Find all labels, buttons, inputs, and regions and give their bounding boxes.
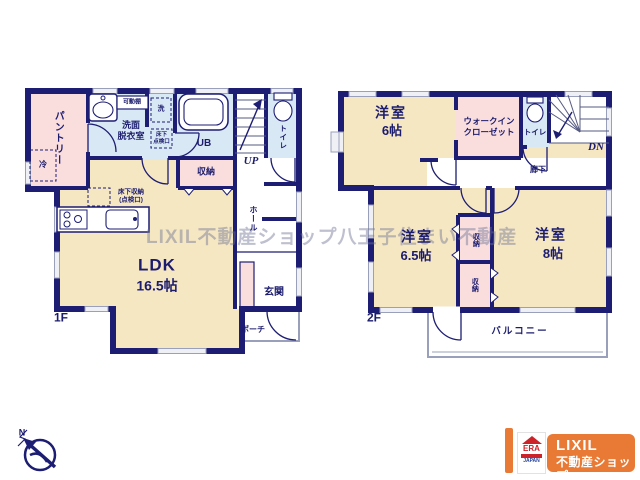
label-ldk: LDK <box>138 254 176 275</box>
era-country: JAPAN <box>523 459 540 464</box>
era-roof-icon <box>522 436 542 444</box>
shoe-cabinet <box>240 262 254 307</box>
label-bedroom1-size: 6帖 <box>382 123 402 139</box>
label-bedroom1: 洋室 <box>375 104 407 122</box>
label-toilet-2f: トイレ <box>524 127 547 136</box>
label-unit-bath: UB <box>197 138 211 151</box>
brand-name: LIXIL <box>556 438 635 455</box>
label-floor1: 1F <box>54 311 68 326</box>
label-fridge: 冷 <box>39 160 47 170</box>
label-toilet-1f: トイレ <box>278 124 287 150</box>
label-stairs-up: UP <box>244 155 259 169</box>
label-floor2: 2F <box>367 311 381 326</box>
label-ldk-size: 16.5帖 <box>136 277 177 295</box>
brand-badge: LIXIL 不動産ショップ <box>547 434 635 472</box>
stove-icon <box>60 210 87 229</box>
compass-wing <box>30 454 47 462</box>
watermark-text: LIXIL不動産ショップ八王子住まい不動産 <box>146 222 517 249</box>
label-stairs-dn: DN <box>588 141 604 155</box>
era-name: ERA <box>523 445 540 453</box>
label-storage-lower: 収納 <box>470 278 479 292</box>
label-movable-shelf: 可動棚 <box>123 99 141 107</box>
label-porch: ポーチ <box>241 325 265 335</box>
room-corridor <box>427 158 609 188</box>
label-storage-1f: 収納 <box>197 166 215 177</box>
label-hall: ホール <box>248 206 258 233</box>
label-underfloor-storage: 床下収納 (点検口) <box>118 189 144 206</box>
label-balcony: バルコニー <box>491 326 548 338</box>
label-bedroom3-size: 8帖 <box>543 246 563 262</box>
compass-north-label: N <box>19 427 26 438</box>
era-logo: ERA JAPAN <box>517 432 546 474</box>
floorplan-page: LIXIL不動産ショップ八王子住まい不動産 パントリー 冷 洗面 脱衣室 可動棚… <box>0 0 640 480</box>
label-storage-upper: 収納 <box>471 233 480 247</box>
label-entrance: 玄関 <box>264 287 284 300</box>
label-bedroom3: 洋室 <box>535 226 567 244</box>
label-bedroom2: 洋室 <box>401 228 433 246</box>
label-pantry: パントリー <box>51 111 64 166</box>
logo-accent-bar <box>505 428 513 473</box>
label-washer: 洗 <box>158 106 165 115</box>
label-bedroom2-size: 6.5帖 <box>400 248 431 264</box>
label-wic: ウォークイン クローゼット <box>463 116 514 138</box>
brand-subtitle: 不動産ショップ <box>556 455 635 480</box>
toilet-1f-icon <box>274 93 292 100</box>
label-corridor: 廊下 <box>530 165 546 175</box>
label-washroom: 洗面 脱衣室 <box>117 120 144 143</box>
toilet-2f-icon <box>527 97 543 122</box>
agency-logo: ERA JAPAN LIXIL 不動産ショップ <box>505 428 635 474</box>
label-underfloor-access: 床下 点検口 <box>153 132 170 146</box>
balcony-door-opening <box>433 307 460 314</box>
